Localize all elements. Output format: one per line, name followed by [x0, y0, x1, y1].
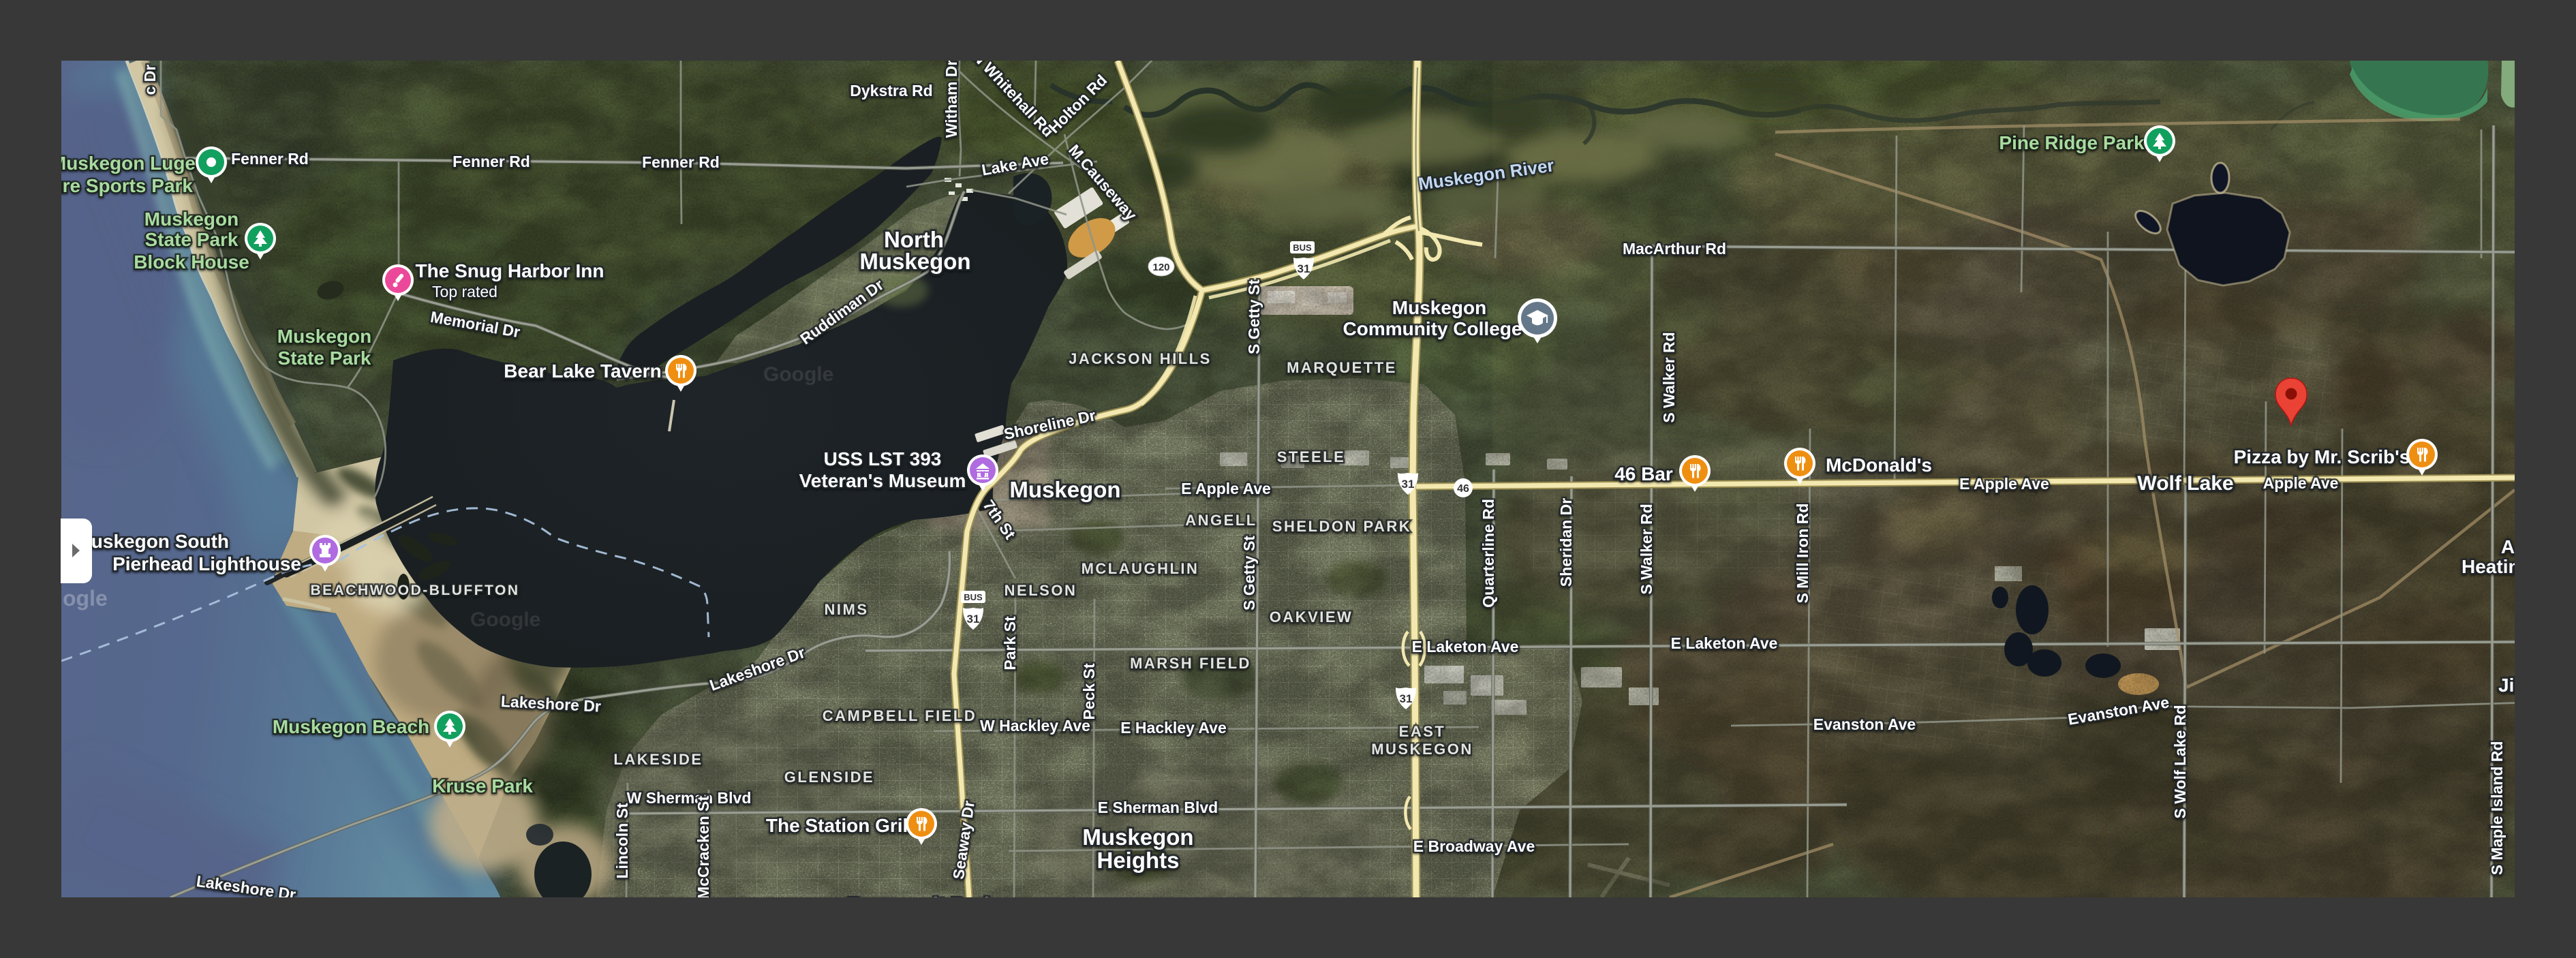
svg-text:E Apple Ave: E Apple Ave	[1959, 475, 2049, 493]
svg-text:31: 31	[1400, 692, 1413, 705]
svg-text:OAKVIEW: OAKVIEW	[1270, 608, 1353, 625]
svg-text:S Mill Iron Rd: S Mill Iron Rd	[1794, 504, 1811, 604]
svg-text:State Park: State Park	[145, 229, 239, 250]
svg-text:Pizza by Mr. Scrib's: Pizza by Mr. Scrib's	[2234, 446, 2410, 467]
svg-text:S Getty St: S Getty St	[1240, 536, 1258, 611]
svg-text:Lincoln St: Lincoln St	[613, 803, 631, 879]
svg-text:Dykstra Rd: Dykstra Rd	[850, 82, 932, 99]
svg-text:McCracken St: McCracken St	[694, 796, 712, 897]
svg-text:46: 46	[1457, 483, 1469, 495]
svg-text:Wolf Lake: Wolf Lake	[2137, 472, 2233, 495]
svg-text:Muskegon South: Muskegon South	[75, 531, 229, 552]
svg-text:MARQUETTE: MARQUETTE	[1287, 359, 1397, 376]
svg-text:Bear Lake Tavern: Bear Lake Tavern	[504, 360, 661, 382]
svg-text:Pierhead Lighthouse: Pierhead Lighthouse	[112, 553, 301, 574]
svg-text:JACKSON HILLS: JACKSON HILLS	[1069, 350, 1212, 367]
svg-text:Muskegon: Muskegon	[1009, 477, 1120, 502]
svg-text:E Sherman Blvd: E Sherman Blvd	[1098, 799, 1218, 816]
svg-text:c Dr: c Dr	[141, 65, 159, 95]
svg-text:Evanston Ave: Evanston Ave	[1813, 715, 1916, 733]
svg-text:MacArthur Rd: MacArthur Rd	[1623, 240, 1726, 258]
svg-text:MUSKEGON: MUSKEGON	[1371, 741, 1473, 758]
svg-text:S Walker Rd: S Walker Rd	[1660, 332, 1678, 422]
svg-text:Park St: Park St	[1001, 616, 1019, 670]
svg-text:Sheridan Dr: Sheridan Dr	[1557, 498, 1575, 587]
svg-text:Peck St: Peck St	[1080, 663, 1098, 720]
svg-text:Kruse Park: Kruse Park	[432, 775, 533, 797]
svg-text:BEACHWOOD-BLUFFTON: BEACHWOOD-BLUFFTON	[310, 583, 519, 598]
svg-text:E Hackley Ave: E Hackley Ave	[1120, 719, 1227, 737]
svg-text:CAMPBELL FIELD: CAMPBELL FIELD	[823, 707, 977, 724]
svg-text:The Station Grill: The Station Grill	[766, 815, 913, 836]
svg-text:Muskegon: Muskegon	[859, 249, 970, 274]
svg-text:E Laketon Ave: E Laketon Ave	[1671, 634, 1778, 652]
svg-text:MARSH FIELD: MARSH FIELD	[1130, 655, 1251, 672]
svg-text:Google: Google	[470, 608, 540, 631]
svg-text:E Laketon Ave: E Laketon Ave	[1412, 638, 1519, 655]
svg-text:Google: Google	[763, 363, 833, 386]
svg-text:BUS: BUS	[1293, 243, 1312, 253]
svg-text:46 Bar: 46 Bar	[1614, 463, 1673, 484]
svg-text:Pine Ridge Park: Pine Ridge Park	[1999, 132, 2145, 153]
svg-text:Heights: Heights	[1097, 848, 1179, 873]
svg-text:S Wolf Lake Rd: S Wolf Lake Rd	[2171, 705, 2189, 819]
svg-text:Muskegon: Muskegon	[1392, 297, 1486, 318]
svg-text:Top rated: Top rated	[432, 283, 497, 300]
svg-text:NIMS: NIMS	[825, 601, 869, 618]
svg-text:ogle: ogle	[63, 586, 108, 611]
svg-text:ANGELL: ANGELL	[1185, 512, 1257, 529]
svg-text:S Maple Island Rd: S Maple Island Rd	[2488, 741, 2506, 876]
svg-text:Quarterline Rd: Quarterline Rd	[1479, 499, 1497, 608]
svg-text:31: 31	[1402, 478, 1415, 491]
svg-text:S Getty St: S Getty St	[1245, 279, 1263, 354]
svg-text:Heating: Heating	[2462, 556, 2515, 577]
svg-text:E Apple Ave: E Apple Ave	[1181, 480, 1271, 497]
svg-text:STEELE: STEELE	[1277, 448, 1346, 465]
svg-text:Fenner Rd: Fenner Rd	[453, 153, 530, 170]
svg-text:M: M	[980, 470, 985, 477]
svg-text:Roosevelt Park: Roosevelt Park	[848, 894, 996, 897]
svg-text:Witham Dr: Witham Dr	[942, 61, 960, 138]
svg-text:MCLAUGHLIN: MCLAUGHLIN	[1082, 560, 1199, 577]
svg-text:Jim: Jim	[2498, 675, 2515, 696]
svg-text:Muskegon: Muskegon	[277, 326, 371, 347]
svg-text:McDonald's: McDonald's	[1826, 454, 1932, 476]
svg-text:LAKESIDE: LAKESIDE	[613, 751, 703, 768]
svg-text:SHELDON PARK: SHELDON PARK	[1272, 518, 1411, 535]
svg-text:W Hackley Ave: W Hackley Ave	[980, 717, 1090, 735]
svg-text:W Sherman Blvd: W Sherman Blvd	[627, 789, 752, 807]
svg-text:The Snug Harbor Inn: The Snug Harbor Inn	[416, 260, 604, 281]
svg-text:GLENSIDE: GLENSIDE	[784, 769, 874, 786]
svg-text:Apple Ave: Apple Ave	[2263, 474, 2339, 492]
svg-text:Community College: Community College	[1343, 318, 1522, 339]
svg-text:Muskegon: Muskegon	[1082, 824, 1193, 850]
svg-text:Fenner Rd: Fenner Rd	[642, 153, 720, 171]
svg-text:31: 31	[1298, 262, 1310, 275]
svg-text:Veteran's Museum: Veteran's Museum	[799, 470, 966, 491]
svg-text:A: A	[2501, 536, 2515, 557]
svg-text:ure Sports Park: ure Sports Park	[61, 175, 193, 196]
svg-text:USS LST 393: USS LST 393	[824, 448, 942, 469]
svg-text:State Park: State Park	[278, 347, 371, 369]
svg-text:E Broadway Ave: E Broadway Ave	[1413, 837, 1535, 855]
svg-text:NELSON: NELSON	[1005, 582, 1077, 599]
svg-text:BUS: BUS	[964, 592, 983, 602]
svg-text:31: 31	[967, 613, 980, 625]
svg-text:Block House: Block House	[134, 251, 249, 273]
svg-text:Muskegon: Muskegon	[144, 208, 239, 230]
svg-text:S Walker Rd: S Walker Rd	[1638, 504, 1655, 594]
svg-text:Fenner Rd: Fenner Rd	[231, 150, 309, 168]
svg-text:120: 120	[1152, 262, 1169, 273]
svg-text:Muskegon Luge: Muskegon Luge	[61, 153, 196, 174]
svg-text:EAST: EAST	[1399, 723, 1446, 740]
svg-text:Muskegon Beach: Muskegon Beach	[273, 716, 429, 737]
